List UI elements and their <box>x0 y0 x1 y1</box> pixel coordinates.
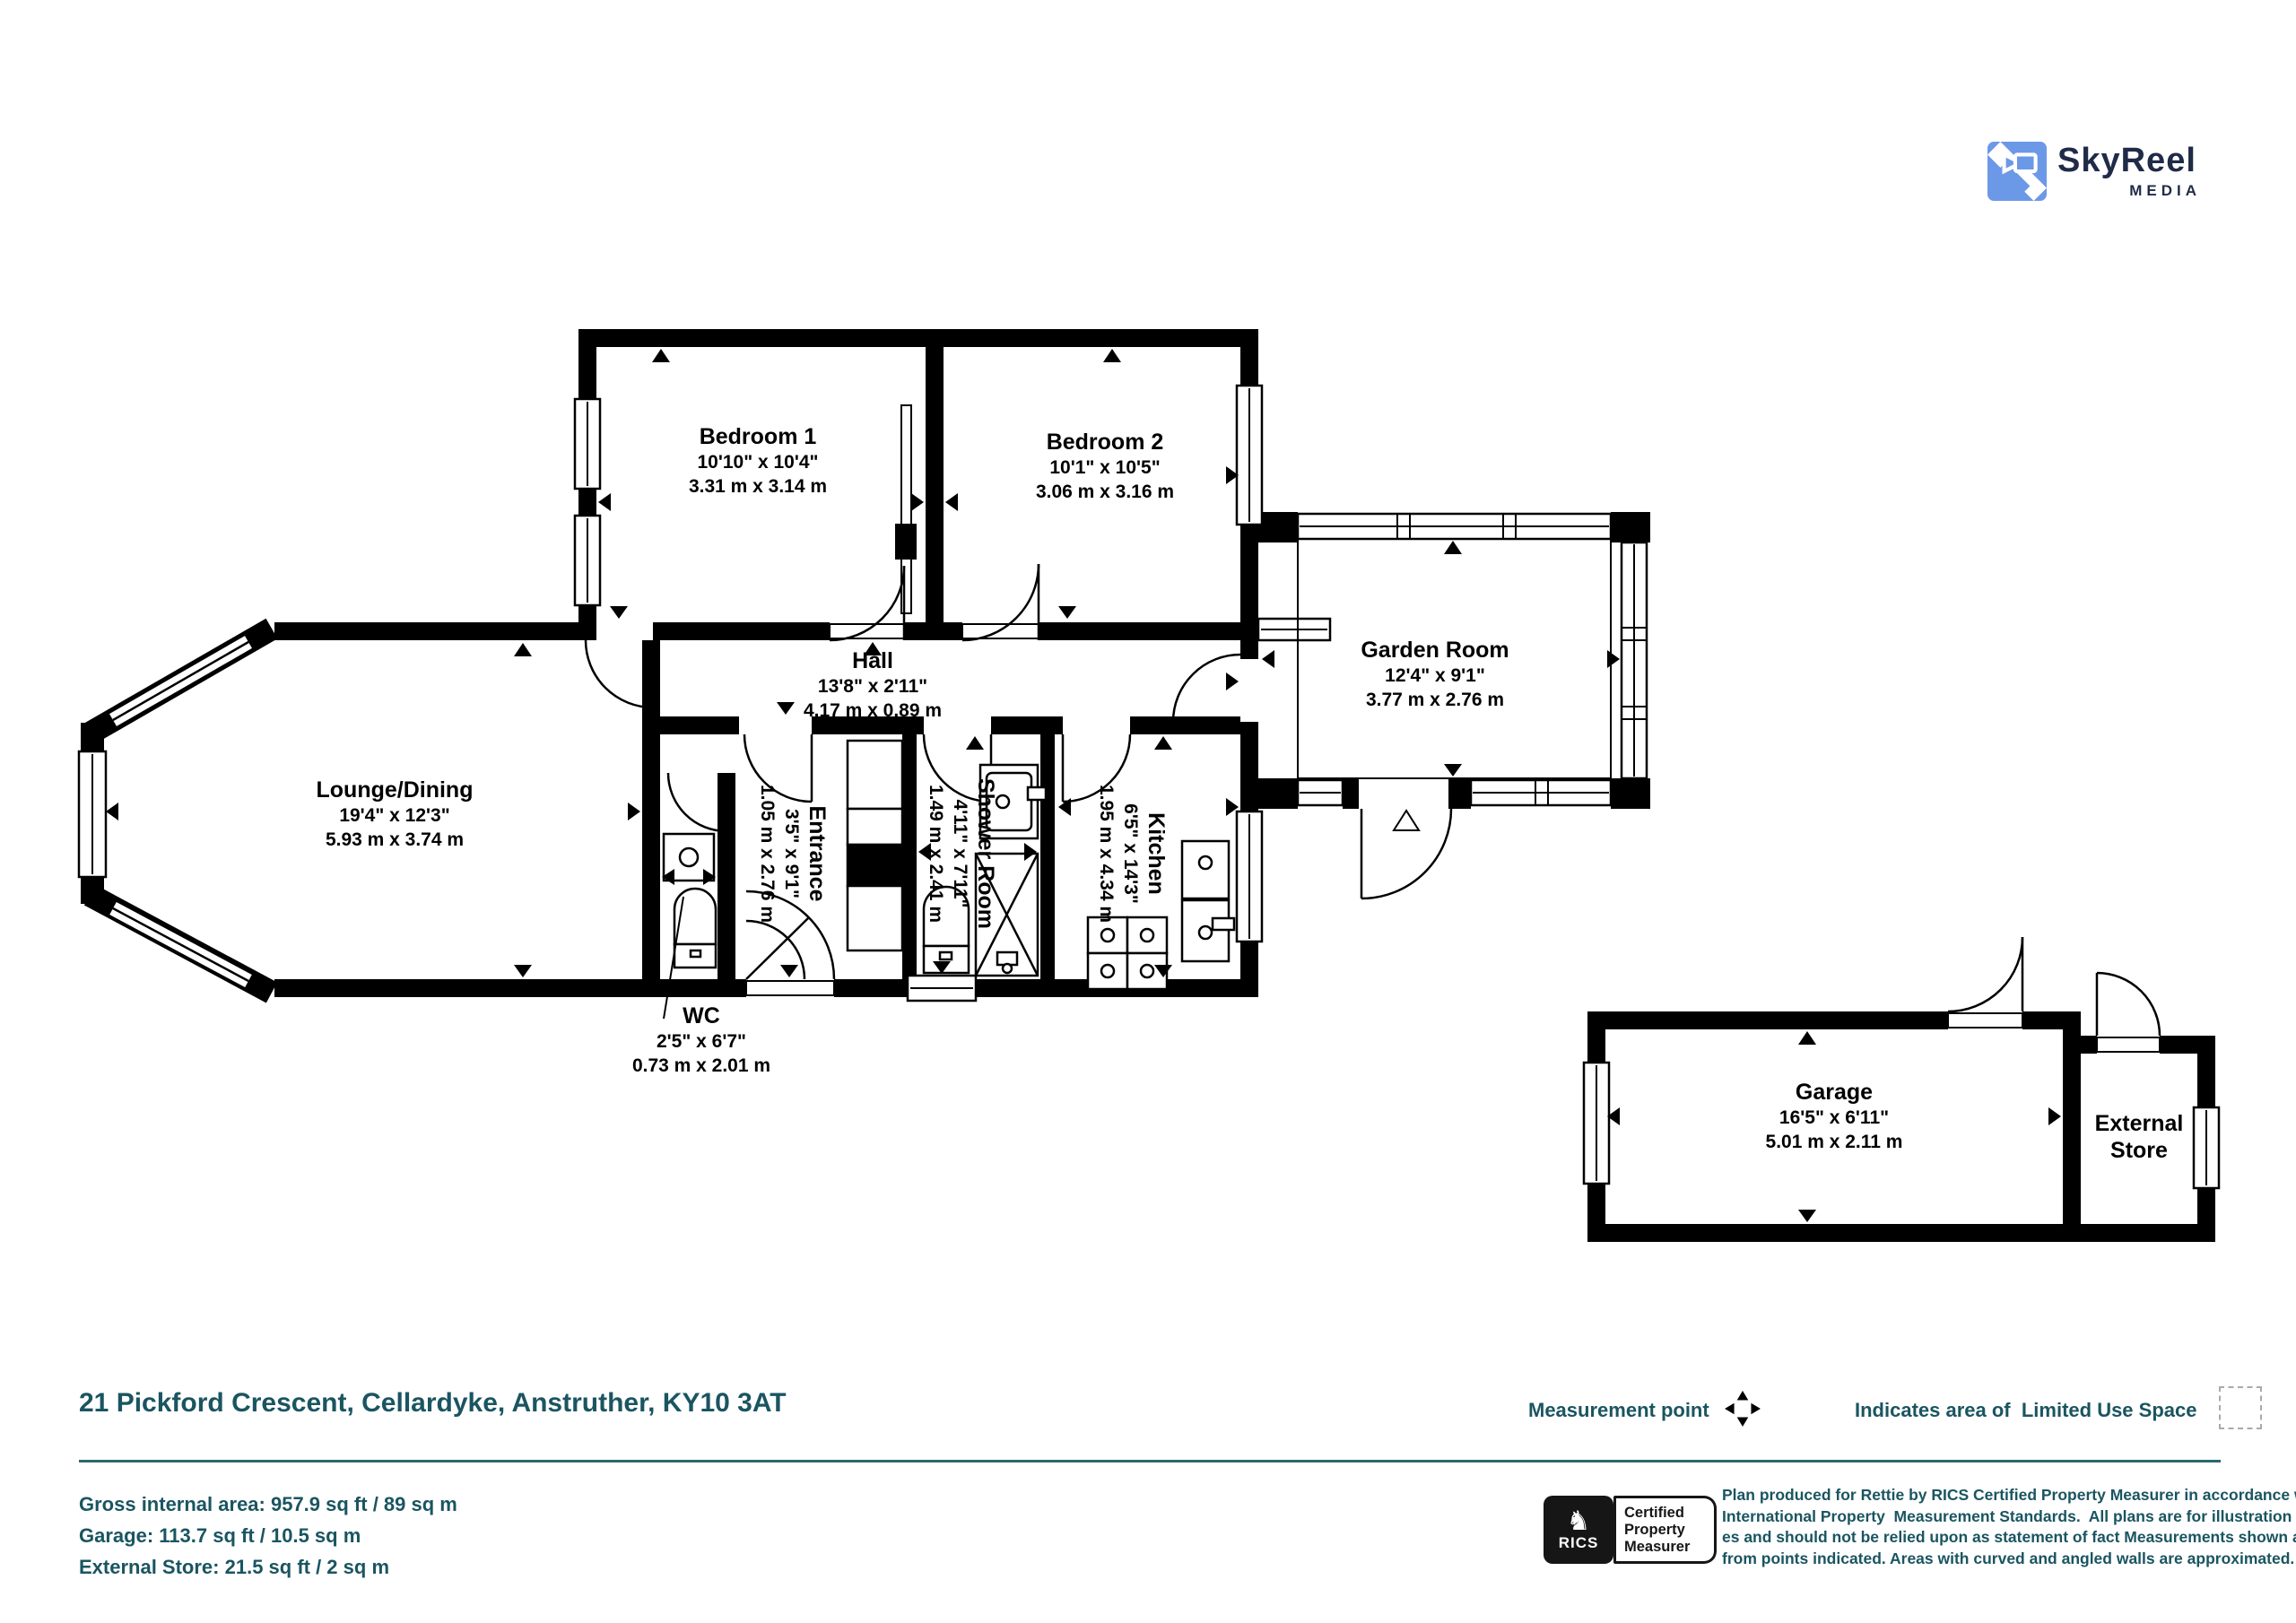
room-dim-imperial: 4'11" x 7'11" <box>948 778 972 929</box>
external-store-area: External Store: 21.5 sq ft / 2 sq m <box>79 1551 457 1583</box>
rics-certified-line: Certified <box>1624 1505 1714 1522</box>
skyreel-logo-icon <box>1987 142 2047 201</box>
limited-use-space-icon <box>2219 1386 2262 1429</box>
disclaimer-text: Plan produced for Rettie by RICS Certifi… <box>1722 1485 2296 1569</box>
room-dim-metric: 1.05 m x 2.76 m <box>755 785 779 923</box>
room-dim-metric: 1.49 m x 2.41 m <box>924 778 948 929</box>
room-dim-metric: 3.77 m x 2.76 m <box>1361 688 1509 712</box>
property-address: 21 Pickford Crescent, Cellardyke, Anstru… <box>79 1388 787 1419</box>
room-dim-imperial: 19'4" x 12'3" <box>317 803 474 828</box>
room-dim-imperial: 10'1" x 10'5" <box>1036 456 1174 480</box>
room-label-lounge: Lounge/Dining 19'4" x 12'3" 5.93 m x 3.7… <box>317 777 474 852</box>
floorplan-page: Bedroom 1 10'10" x 10'4" 3.31 m x 3.14 m… <box>0 0 2296 1623</box>
room-name: Entrance <box>804 785 831 923</box>
legend-measurement-point-label: Measurement point <box>1528 1399 1709 1422</box>
room-dim-imperial: 6'5" x 14'3" <box>1118 785 1143 923</box>
room-name: External <box>2095 1110 2184 1137</box>
legend-limited-use-label: Indicates area of Limited Use Space <box>1855 1399 2196 1422</box>
rics-certified-box: Certified Property Measurer <box>1613 1496 1717 1564</box>
room-label-bedroom2: Bedroom 2 10'1" x 10'5" 3.06 m x 3.16 m <box>1036 429 1174 504</box>
rics-acronym: RICS <box>1559 1535 1599 1551</box>
room-label-garden-room: Garden Room 12'4" x 9'1" 3.77 m x 2.76 m <box>1361 637 1509 712</box>
rics-lion-icon: ♞ <box>1567 1508 1591 1535</box>
room-name: Garden Room <box>1361 637 1509 664</box>
room-label-bedroom1: Bedroom 1 10'10" x 10'4" 3.31 m x 3.14 m <box>689 423 827 499</box>
skyreel-logo-sub: MEDIA <box>2057 182 2201 200</box>
room-name: Lounge/Dining <box>317 777 474 803</box>
disclaimer-line: es and should not be relied upon as stat… <box>1722 1527 2296 1549</box>
room-dim-imperial: 13'8" x 2'11" <box>804 674 942 699</box>
room-name: Garage <box>1766 1079 1903 1106</box>
measurement-point-icon <box>1724 1390 1761 1428</box>
hob <box>1088 917 1167 989</box>
rics-certified-line: Property <box>1624 1522 1714 1539</box>
room-name: Bedroom 2 <box>1036 429 1174 456</box>
room-name: Store <box>2095 1137 2184 1164</box>
footer-divider <box>79 1460 2221 1462</box>
room-name: Bedroom 1 <box>689 423 827 450</box>
room-dim-imperial: 10'10" x 10'4" <box>689 450 827 474</box>
room-dim-metric: 0.73 m x 2.01 m <box>632 1054 770 1078</box>
room-name: Kitchen <box>1143 785 1170 923</box>
room-dim-imperial: 12'4" x 9'1" <box>1361 664 1509 688</box>
room-dim-metric: 5.01 m x 2.11 m <box>1766 1130 1903 1154</box>
room-name: Hall <box>804 647 942 674</box>
garage-area: Garage: 113.7 sq ft / 10.5 sq m <box>79 1520 457 1551</box>
skyreel-logo-wordmark: SkyReel <box>2057 142 2196 180</box>
room-label-entrance: Entrance 3'5" x 9'1" 1.05 m x 2.76 m <box>755 785 831 923</box>
gross-internal-area: Gross internal area: 957.9 sq ft / 89 sq… <box>79 1488 457 1520</box>
room-dim-metric: 1.95 m x 4.34 m <box>1094 785 1118 923</box>
room-label-shower-room: Shower Room 4'11" x 7'11" 1.49 m x 2.41 … <box>924 778 999 929</box>
room-label-garage: Garage 16'5" x 6'11" 5.01 m x 2.11 m <box>1766 1079 1903 1154</box>
disclaimer-line: from points indicated. Areas with curved… <box>1722 1549 2296 1570</box>
room-dim-imperial: 2'5" x 6'7" <box>632 1029 770 1054</box>
disclaimer-line: International Property Measurement Stand… <box>1722 1506 2296 1528</box>
room-name: WC <box>632 1002 770 1029</box>
room-dim-metric: 4.17 m x 0.89 m <box>804 699 942 723</box>
cupboard <box>848 741 902 809</box>
room-dim-metric: 3.31 m x 3.14 m <box>689 474 827 499</box>
room-dim-imperial: 16'5" x 6'11" <box>1766 1106 1903 1130</box>
room-dim-metric: 3.06 m x 3.16 m <box>1036 480 1174 504</box>
room-label-wc: WC 2'5" x 6'7" 0.73 m x 2.01 m <box>632 1002 770 1078</box>
room-label-external-store: External Store <box>2095 1110 2184 1164</box>
rics-badge: ♞ RICS <box>1544 1496 1613 1564</box>
room-label-kitchen: Kitchen 6'5" x 14'3" 1.95 m x 4.34 m <box>1094 785 1170 923</box>
rics-certified-line: Measurer <box>1624 1539 1714 1556</box>
room-dim-metric: 5.93 m x 3.74 m <box>317 828 474 852</box>
room-label-hall: Hall 13'8" x 2'11" 4.17 m x 0.89 m <box>804 647 942 723</box>
area-summary: Gross internal area: 957.9 sq ft / 89 sq… <box>79 1488 457 1583</box>
room-dim-imperial: 3'5" x 9'1" <box>779 785 804 923</box>
room-name: Shower Room <box>972 778 999 929</box>
disclaimer-line: Plan produced for Rettie by RICS Certifi… <box>1722 1485 2296 1506</box>
